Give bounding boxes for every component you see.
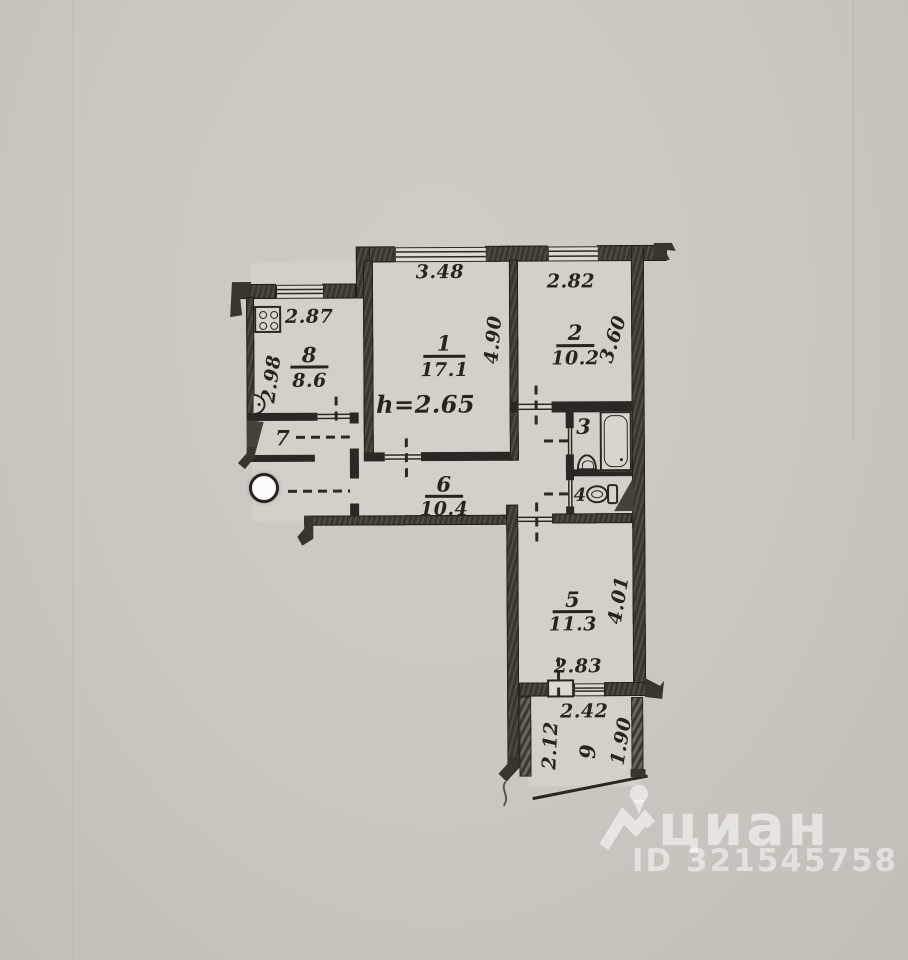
dim-room2-width: 2.82 bbox=[547, 270, 595, 292]
toilet-bowl bbox=[586, 485, 608, 503]
ceiling-height-note: h=2.65 bbox=[376, 389, 475, 419]
kitchen-door-dash bbox=[335, 397, 338, 426]
bathtub-icon bbox=[600, 411, 632, 471]
room8-number: 8 bbox=[302, 342, 317, 367]
room9-number: 9 bbox=[575, 744, 600, 759]
room1-fraction-bar bbox=[423, 355, 465, 358]
wall-corridor-bottom-left bbox=[304, 515, 508, 526]
cian-listing-id: ID 321545758 bbox=[632, 843, 898, 879]
dim-room5-width: 2.83 bbox=[554, 655, 602, 677]
room2-area: 10.2 bbox=[551, 347, 599, 369]
wall-corridor-bottom-right bbox=[552, 513, 632, 523]
wall-room7-bottom bbox=[247, 455, 315, 462]
dim-room1-depth: 4.90 bbox=[480, 315, 506, 365]
room8-fraction-bar bbox=[290, 365, 328, 368]
wall-bath-left-b bbox=[566, 454, 574, 480]
sink-drain-dot bbox=[258, 403, 261, 406]
room1-area: 17.1 bbox=[420, 359, 468, 381]
scanned-floorplan-page: 3.48 2.82 2.87 2.98 8 8.6 1 17.1 4.90 2 … bbox=[0, 0, 908, 960]
window-kitchen bbox=[276, 285, 324, 299]
wall-room5-left bbox=[506, 505, 519, 765]
loggia-door-leaf bbox=[547, 679, 574, 697]
window-room1 bbox=[395, 247, 487, 262]
wall-hall-upper bbox=[350, 412, 359, 423]
room5-number: 5 bbox=[565, 587, 580, 612]
hole-punch-mark bbox=[249, 473, 279, 503]
stove-icon bbox=[254, 306, 281, 333]
dim-loggia-top: 2.42 bbox=[560, 700, 608, 722]
wc-door-dash bbox=[544, 492, 570, 495]
wall-room1-room2-divider bbox=[509, 260, 519, 461]
room7-opening-dash bbox=[296, 436, 350, 439]
cian-watermark: циан ID 321545758 bbox=[595, 775, 895, 885]
window-room2 bbox=[548, 246, 599, 261]
room7-number: 7 bbox=[275, 425, 290, 450]
room2-door-strip-floor bbox=[516, 409, 571, 461]
wall-right-outer bbox=[631, 245, 646, 689]
hall-opening-dash bbox=[288, 490, 350, 493]
dim-kitchen-width: 2.87 bbox=[285, 306, 333, 328]
dim-room1-width: 3.48 bbox=[416, 261, 464, 283]
wall-room1-bottom-right bbox=[421, 452, 513, 461]
wall-loggia-top-left bbox=[519, 683, 548, 697]
cian-logo-icon bbox=[597, 775, 667, 850]
room3-number: 3 bbox=[576, 414, 591, 439]
room2-number: 2 bbox=[568, 320, 583, 345]
wall-room1-left bbox=[363, 260, 374, 460]
room2-door-dash bbox=[535, 386, 538, 430]
wall-hall-mid bbox=[350, 448, 359, 478]
window-loggia bbox=[574, 683, 606, 696]
room6-area: 10.4 bbox=[420, 498, 468, 520]
bath-door-dash bbox=[544, 439, 570, 442]
room1-door-threshold bbox=[385, 452, 421, 461]
wall-kitchen-top-left bbox=[233, 284, 276, 299]
room4-number: 4 bbox=[574, 485, 587, 506]
wall-kitchen-top-right bbox=[322, 284, 356, 299]
wall-room1-bottom-left bbox=[364, 452, 385, 461]
wall-loggia-top-right bbox=[604, 682, 646, 696]
toilet-icon bbox=[607, 484, 618, 504]
room5-door-dash bbox=[535, 503, 538, 545]
room6-number: 6 bbox=[436, 472, 451, 497]
wall-bath-left-a bbox=[566, 407, 574, 428]
room1-door-dash bbox=[405, 438, 408, 480]
room1-number: 1 bbox=[437, 331, 452, 356]
room8-area: 8.6 bbox=[292, 370, 327, 392]
dim-loggia-left: 2.12 bbox=[538, 721, 562, 770]
wall-loggia-left bbox=[519, 697, 531, 777]
room5-area: 11.3 bbox=[549, 613, 597, 635]
wall-room2-bottom bbox=[510, 402, 519, 413]
